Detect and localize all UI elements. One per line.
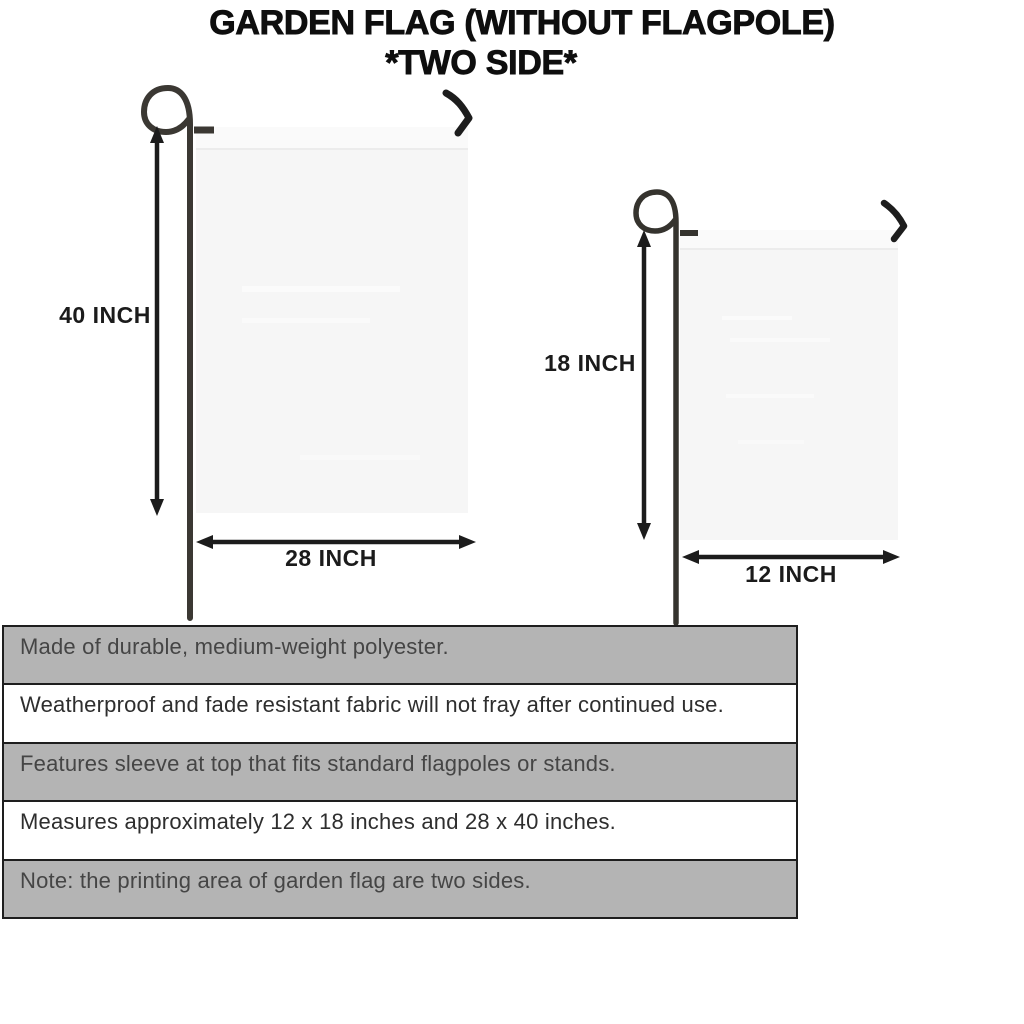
product-infographic: GARDEN FLAG (WITHOUT FLAGPOLE) *TWO SIDE… bbox=[0, 0, 1024, 1024]
large-flag-diagram: 40 INCH 28 INCH bbox=[59, 88, 476, 618]
large-flag-height-label: 40 INCH bbox=[59, 302, 151, 328]
large-flag-pole bbox=[144, 88, 190, 618]
feature-text: Features sleeve at top that fits standar… bbox=[20, 751, 616, 776]
large-flag-sleeve bbox=[196, 127, 468, 148]
small-flag-height-arrow bbox=[637, 230, 651, 540]
feature-row: Note: the printing area of garden flag a… bbox=[4, 859, 796, 917]
feature-text: Weatherproof and fade resistant fabric w… bbox=[20, 692, 724, 717]
large-flag-width-label: 28 INCH bbox=[285, 545, 377, 571]
small-flag-height-label: 18 INCH bbox=[544, 350, 636, 376]
feature-row: Weatherproof and fade resistant fabric w… bbox=[4, 683, 796, 741]
small-flag-diagram: 18 INCH 12 INCH bbox=[544, 192, 904, 623]
feature-row: Made of durable, medium-weight polyester… bbox=[4, 627, 796, 683]
feature-table: Made of durable, medium-weight polyester… bbox=[2, 625, 798, 919]
small-flag-sleeve bbox=[680, 230, 898, 248]
feature-text: Measures approximately 12 x 18 inches an… bbox=[20, 809, 616, 834]
feature-text: Note: the printing area of garden flag a… bbox=[20, 868, 531, 893]
feature-row: Features sleeve at top that fits standar… bbox=[4, 742, 796, 800]
feature-text: Made of durable, medium-weight polyester… bbox=[20, 634, 449, 659]
small-flag-panel bbox=[680, 230, 898, 540]
feature-row: Measures approximately 12 x 18 inches an… bbox=[4, 800, 796, 858]
small-flag-width-label: 12 INCH bbox=[745, 561, 837, 587]
large-flag-height-arrow bbox=[150, 126, 164, 516]
